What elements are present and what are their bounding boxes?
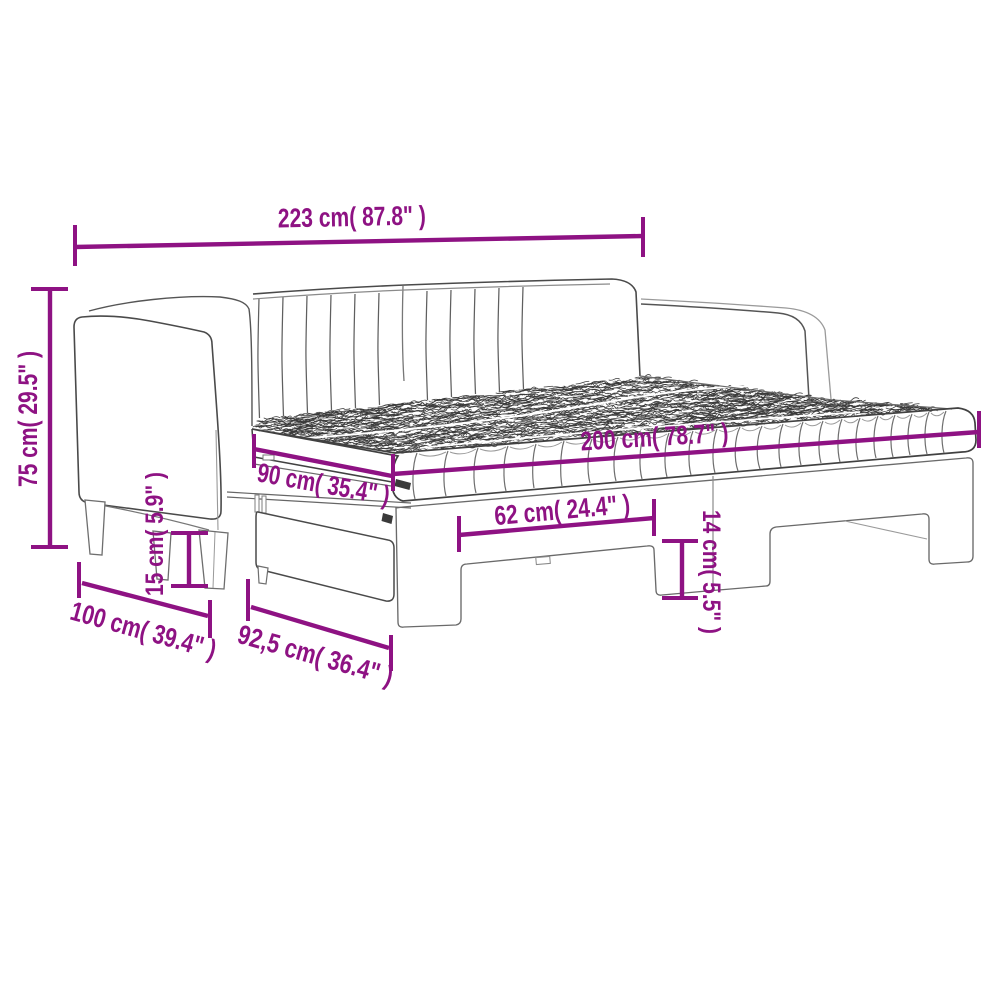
svg-text:14 cm( 5.5" ): 14 cm( 5.5" ) [697, 510, 725, 634]
svg-text:223 cm( 87.8" ): 223 cm( 87.8" ) [278, 200, 427, 233]
svg-text:15 cm( 5.9" ): 15 cm( 5.9" ) [141, 472, 169, 596]
svg-text:75 cm( 29.5" ): 75 cm( 29.5" ) [13, 351, 43, 487]
